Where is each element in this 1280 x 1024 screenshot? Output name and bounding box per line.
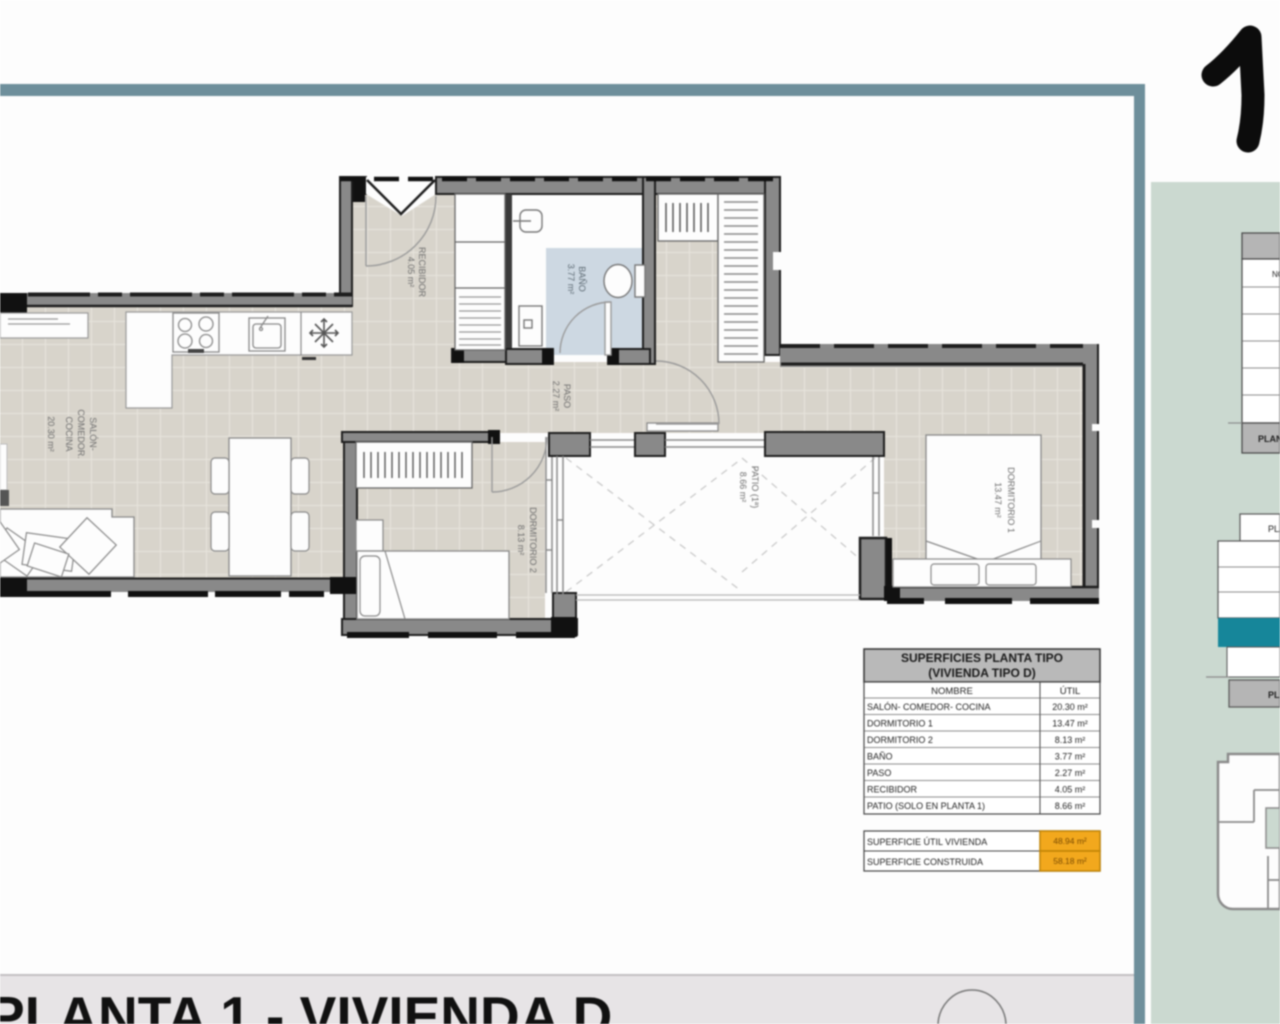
svg-text:BAÑO3.77 m²: BAÑO3.77 m²: [566, 264, 587, 295]
svg-text:2.27 m²: 2.27 m²: [1055, 768, 1086, 778]
svg-text:SUPERFICIE ÚTIL VIVIENDA: SUPERFICIE ÚTIL VIVIENDA: [867, 837, 987, 847]
svg-text:SUPERFICIES PLANTA TIPO: SUPERFICIES PLANTA TIPO: [901, 651, 1063, 665]
svg-text:SUPERFICIE CONSTRUIDA: SUPERFICIE CONSTRUIDA: [867, 857, 983, 867]
svg-text:4.05 m²: 4.05 m²: [1055, 785, 1086, 795]
svg-text:PLANTA: PLANTA: [1268, 524, 1280, 534]
svg-text:58.18 m²: 58.18 m²: [1053, 856, 1087, 866]
svg-text:48.94 m²: 48.94 m²: [1053, 836, 1087, 846]
svg-text:13.47 m²: 13.47 m²: [1052, 719, 1088, 729]
svg-text:PASO2.27 m²: PASO2.27 m²: [551, 381, 572, 412]
svg-text:BAÑO: BAÑO: [867, 752, 893, 762]
svg-text:PATIO (SOLO EN PLANTA 1): PATIO (SOLO EN PLANTA 1): [867, 801, 985, 811]
svg-text:ÚTIL: ÚTIL: [1060, 686, 1081, 697]
svg-text:8.66 m²: 8.66 m²: [1055, 801, 1086, 811]
svg-text:20.30 m²: 20.30 m²: [1052, 702, 1088, 712]
svg-text:PLANTA: PLANTA: [1258, 434, 1280, 444]
svg-text:8.13 m²: 8.13 m²: [1055, 735, 1086, 745]
svg-text:SALÓN- COMEDOR- COCINA: SALÓN- COMEDOR- COCINA: [867, 702, 991, 712]
svg-text:(VIVIENDA TIPO D): (VIVIENDA TIPO D): [928, 666, 1036, 680]
svg-text:DORMITORIO 1: DORMITORIO 1: [867, 719, 933, 729]
svg-text:PLANTA 1 - VIVIENDA D: PLANTA 1 - VIVIENDA D: [0, 985, 612, 1024]
svg-text:PASO: PASO: [867, 768, 891, 778]
svg-text:NOMBRE: NOMBRE: [931, 686, 973, 697]
svg-text:PL: PL: [1268, 690, 1280, 700]
svg-text:3.77 m²: 3.77 m²: [1055, 752, 1086, 762]
svg-text:RECIBIDOR: RECIBIDOR: [867, 785, 918, 795]
svg-text:NOMBRE: NOMBRE: [1272, 270, 1280, 279]
svg-text:DORMITORIO 2: DORMITORIO 2: [867, 735, 933, 745]
